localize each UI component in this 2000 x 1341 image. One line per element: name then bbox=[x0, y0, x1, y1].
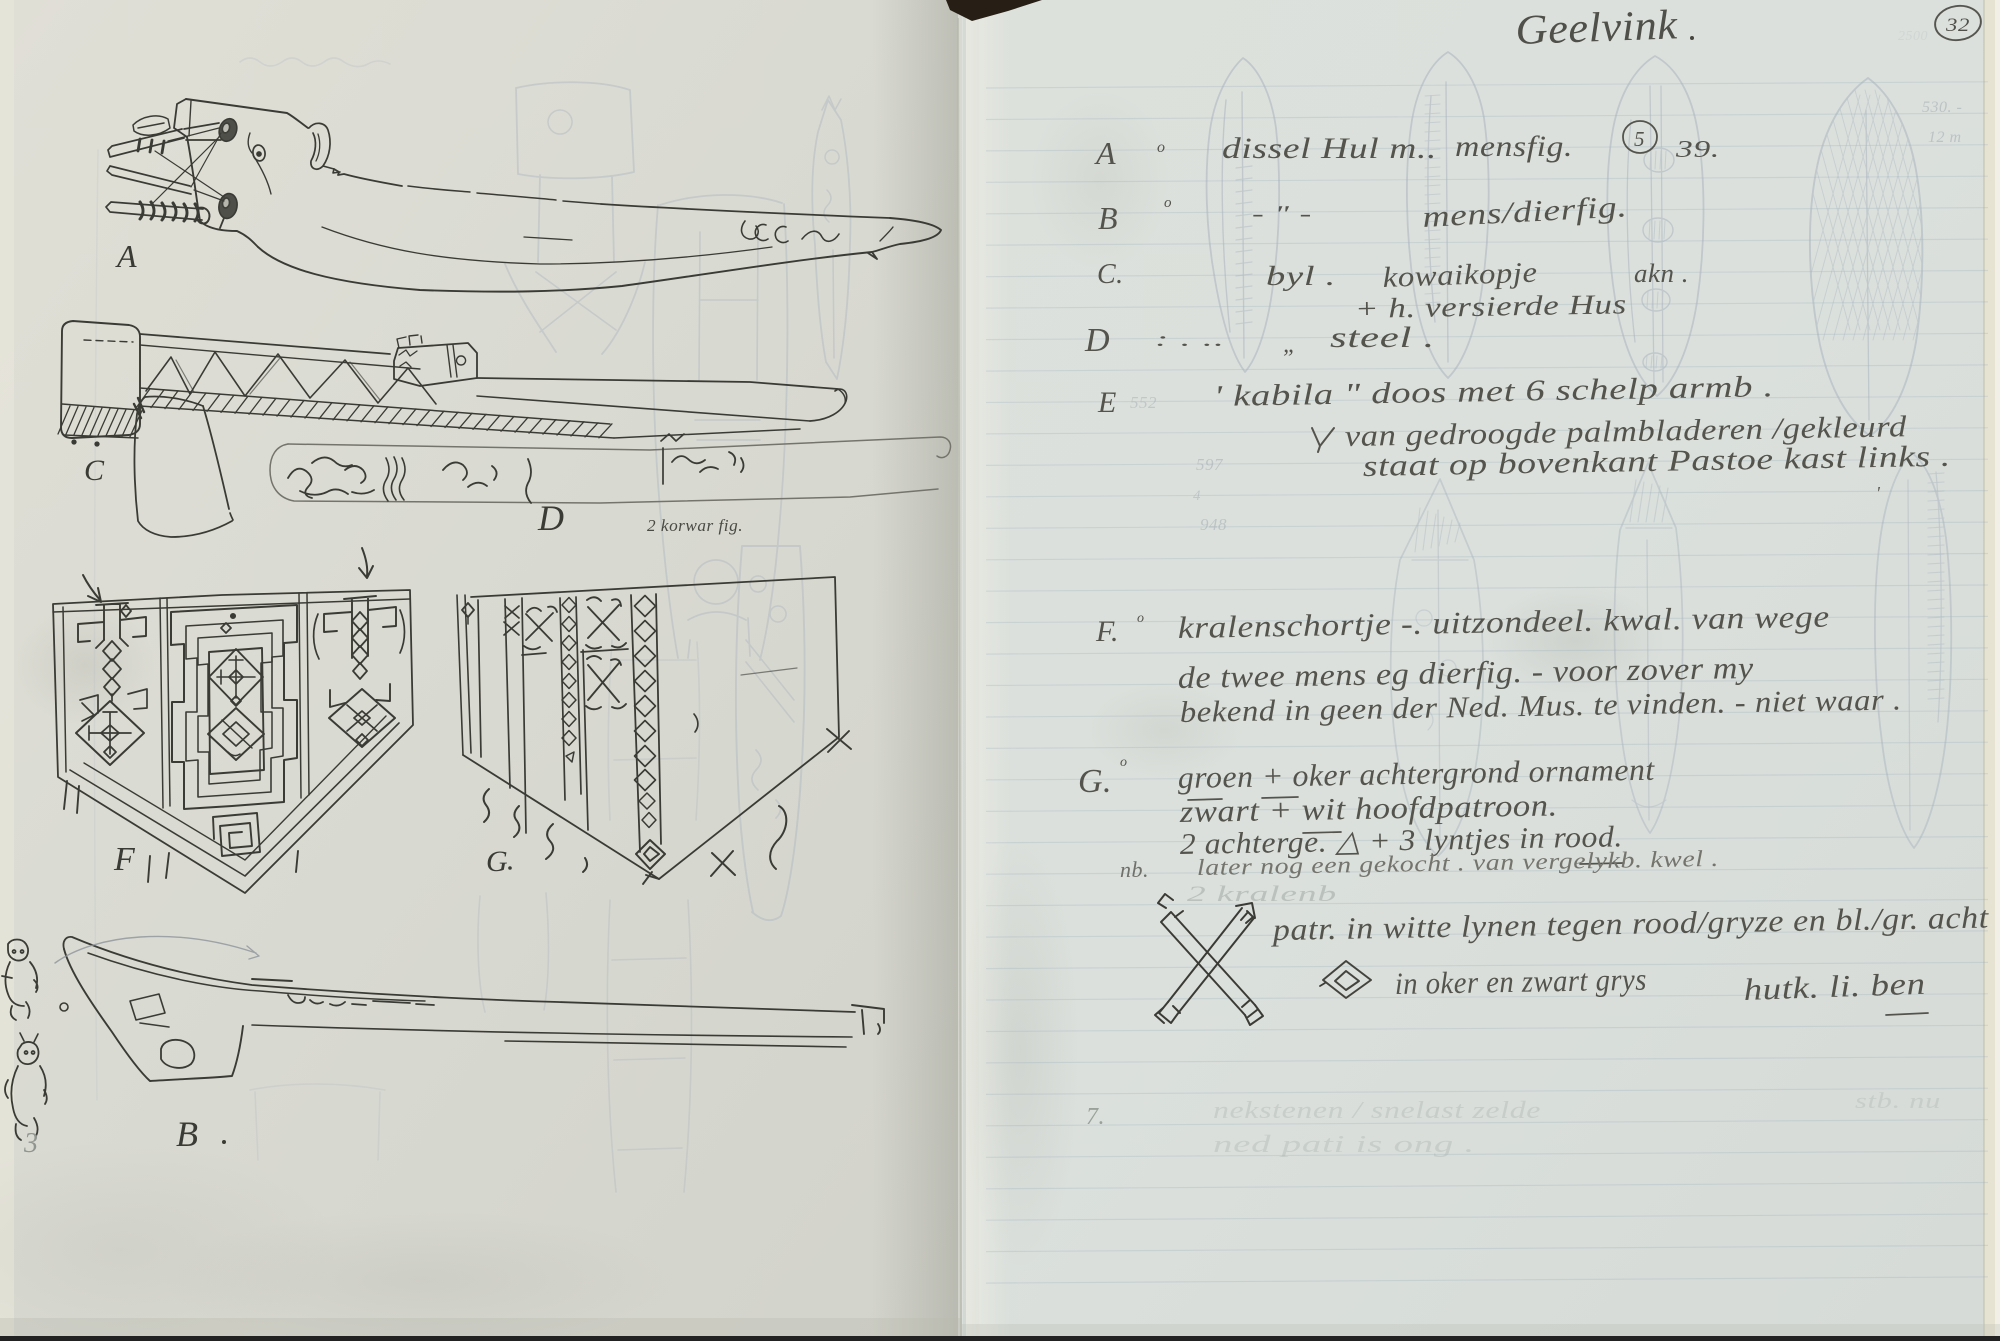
svg-text:E: E bbox=[1097, 386, 1117, 419]
svg-text:530. -: 530. - bbox=[1922, 99, 1962, 116]
svg-text:nekstenen / snelast zelde: nekstenen / snelast zelde bbox=[1213, 1098, 1541, 1124]
svg-text:C.: C. bbox=[1097, 259, 1124, 290]
svg-text:3: 3 bbox=[23, 1128, 39, 1159]
svg-text:akn .: akn . bbox=[1634, 259, 1689, 288]
svg-text:ned pati is ong .: ned pati is ong . bbox=[1213, 1132, 1475, 1158]
svg-text:steel .: steel . bbox=[1330, 321, 1435, 354]
svg-text:A: A bbox=[1094, 135, 1116, 171]
svg-text:- ʺ -: - ʺ - bbox=[1252, 201, 1312, 226]
svg-text:7.: 7. bbox=[1086, 1104, 1105, 1130]
svg-text:B: B bbox=[176, 1114, 199, 1154]
svg-text:4: 4 bbox=[1193, 488, 1201, 504]
svg-text:B: B bbox=[1098, 200, 1118, 236]
svg-text:Geelvink: Geelvink bbox=[1515, 2, 1679, 54]
svg-text:„: „ bbox=[1283, 332, 1297, 358]
svg-text:32: 32 bbox=[1945, 15, 1970, 36]
svg-text:byl .: byl . bbox=[1266, 261, 1336, 291]
svg-text:kowaikopje: kowaikopje bbox=[1382, 257, 1538, 294]
svg-text:o: o bbox=[1120, 755, 1128, 770]
svg-text:39.: 39. bbox=[1675, 137, 1720, 163]
svg-text:o: o bbox=[1137, 611, 1145, 626]
svg-text:552: 552 bbox=[1130, 393, 1157, 412]
svg-text:2 kralenb: 2 kralenb bbox=[1187, 881, 1337, 906]
svg-text:: . ..: : . .. bbox=[1155, 329, 1225, 351]
svg-text:C: C bbox=[84, 454, 105, 487]
svg-text:2 korwar fig.: 2 korwar fig. bbox=[647, 516, 743, 535]
svg-text:D: D bbox=[1084, 322, 1110, 359]
svg-text:597: 597 bbox=[1196, 455, 1224, 474]
svg-text:948: 948 bbox=[1200, 515, 1227, 534]
svg-text:hutk. li. ben: hutk. li. ben bbox=[1743, 966, 1926, 1007]
svg-text:+ h. versierde Hus: + h. versierde Hus bbox=[1355, 289, 1627, 325]
svg-text:2500: 2500 bbox=[1898, 29, 1928, 44]
svg-text:nb.: nb. bbox=[1120, 857, 1149, 882]
svg-text:12 m: 12 m bbox=[1928, 129, 1962, 146]
svg-text:stb. nu: stb. nu bbox=[1855, 1088, 1941, 1113]
svg-text:G: G bbox=[486, 845, 508, 878]
svg-text:A: A bbox=[115, 238, 137, 274]
svg-text:G.: G. bbox=[1078, 763, 1112, 800]
svg-text:o: o bbox=[1157, 139, 1166, 156]
svg-text:5: 5 bbox=[1634, 127, 1645, 151]
svg-text:o: o bbox=[1164, 195, 1172, 211]
svg-text:F.: F. bbox=[1095, 615, 1119, 648]
svg-text:': ' bbox=[1876, 483, 1881, 503]
svg-text:F: F bbox=[113, 841, 136, 878]
svg-text:mensfig.: mensfig. bbox=[1455, 130, 1573, 163]
svg-text:dissel Hul m..: dissel Hul m.. bbox=[1222, 132, 1437, 165]
svg-text:D: D bbox=[537, 498, 565, 538]
svg-text:in oker en zwart grys: in oker en zwart grys bbox=[1395, 962, 1648, 1001]
